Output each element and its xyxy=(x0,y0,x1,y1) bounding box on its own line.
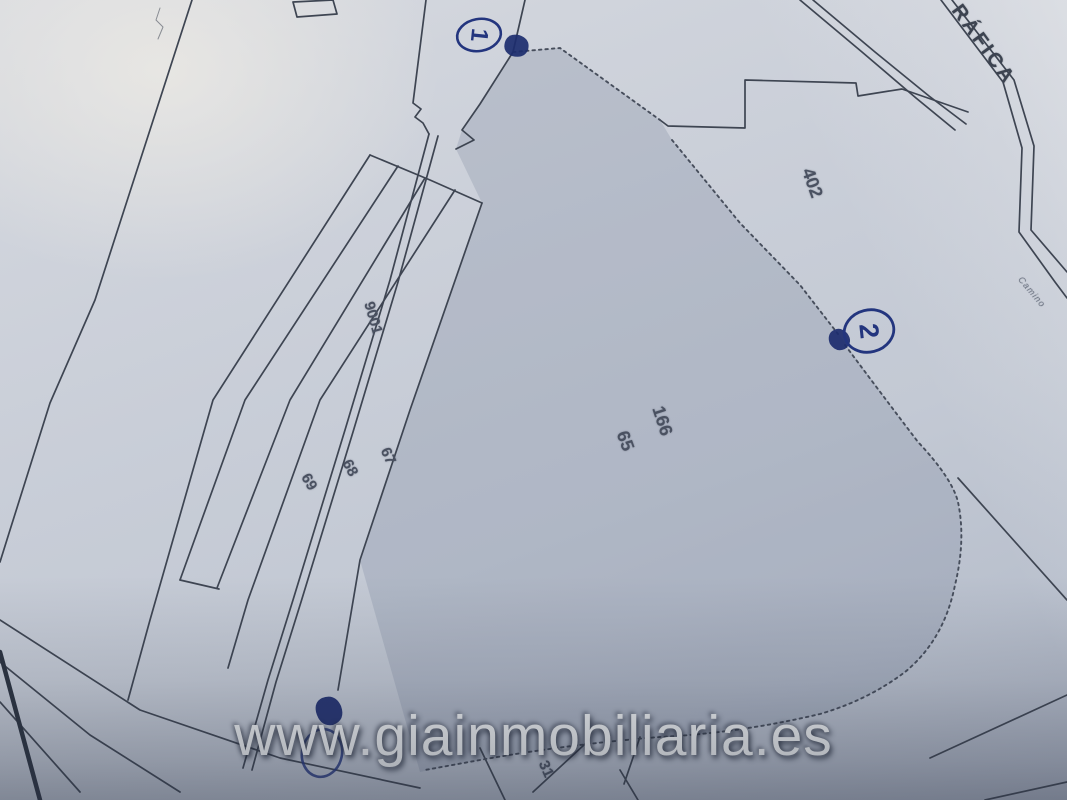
watermark-text: www.giainmobiliaria.es xyxy=(0,703,1067,769)
pen-dot-1 xyxy=(504,35,528,57)
annotation-point-1: 1 xyxy=(465,27,493,43)
map-line-art: 1 2 xyxy=(0,0,1067,800)
cadastral-map-photo: 1 2 402 166 65 9001 67 68 69 31 RÁFICA C… xyxy=(0,0,1067,800)
annotation-point-2: 2 xyxy=(853,322,884,340)
